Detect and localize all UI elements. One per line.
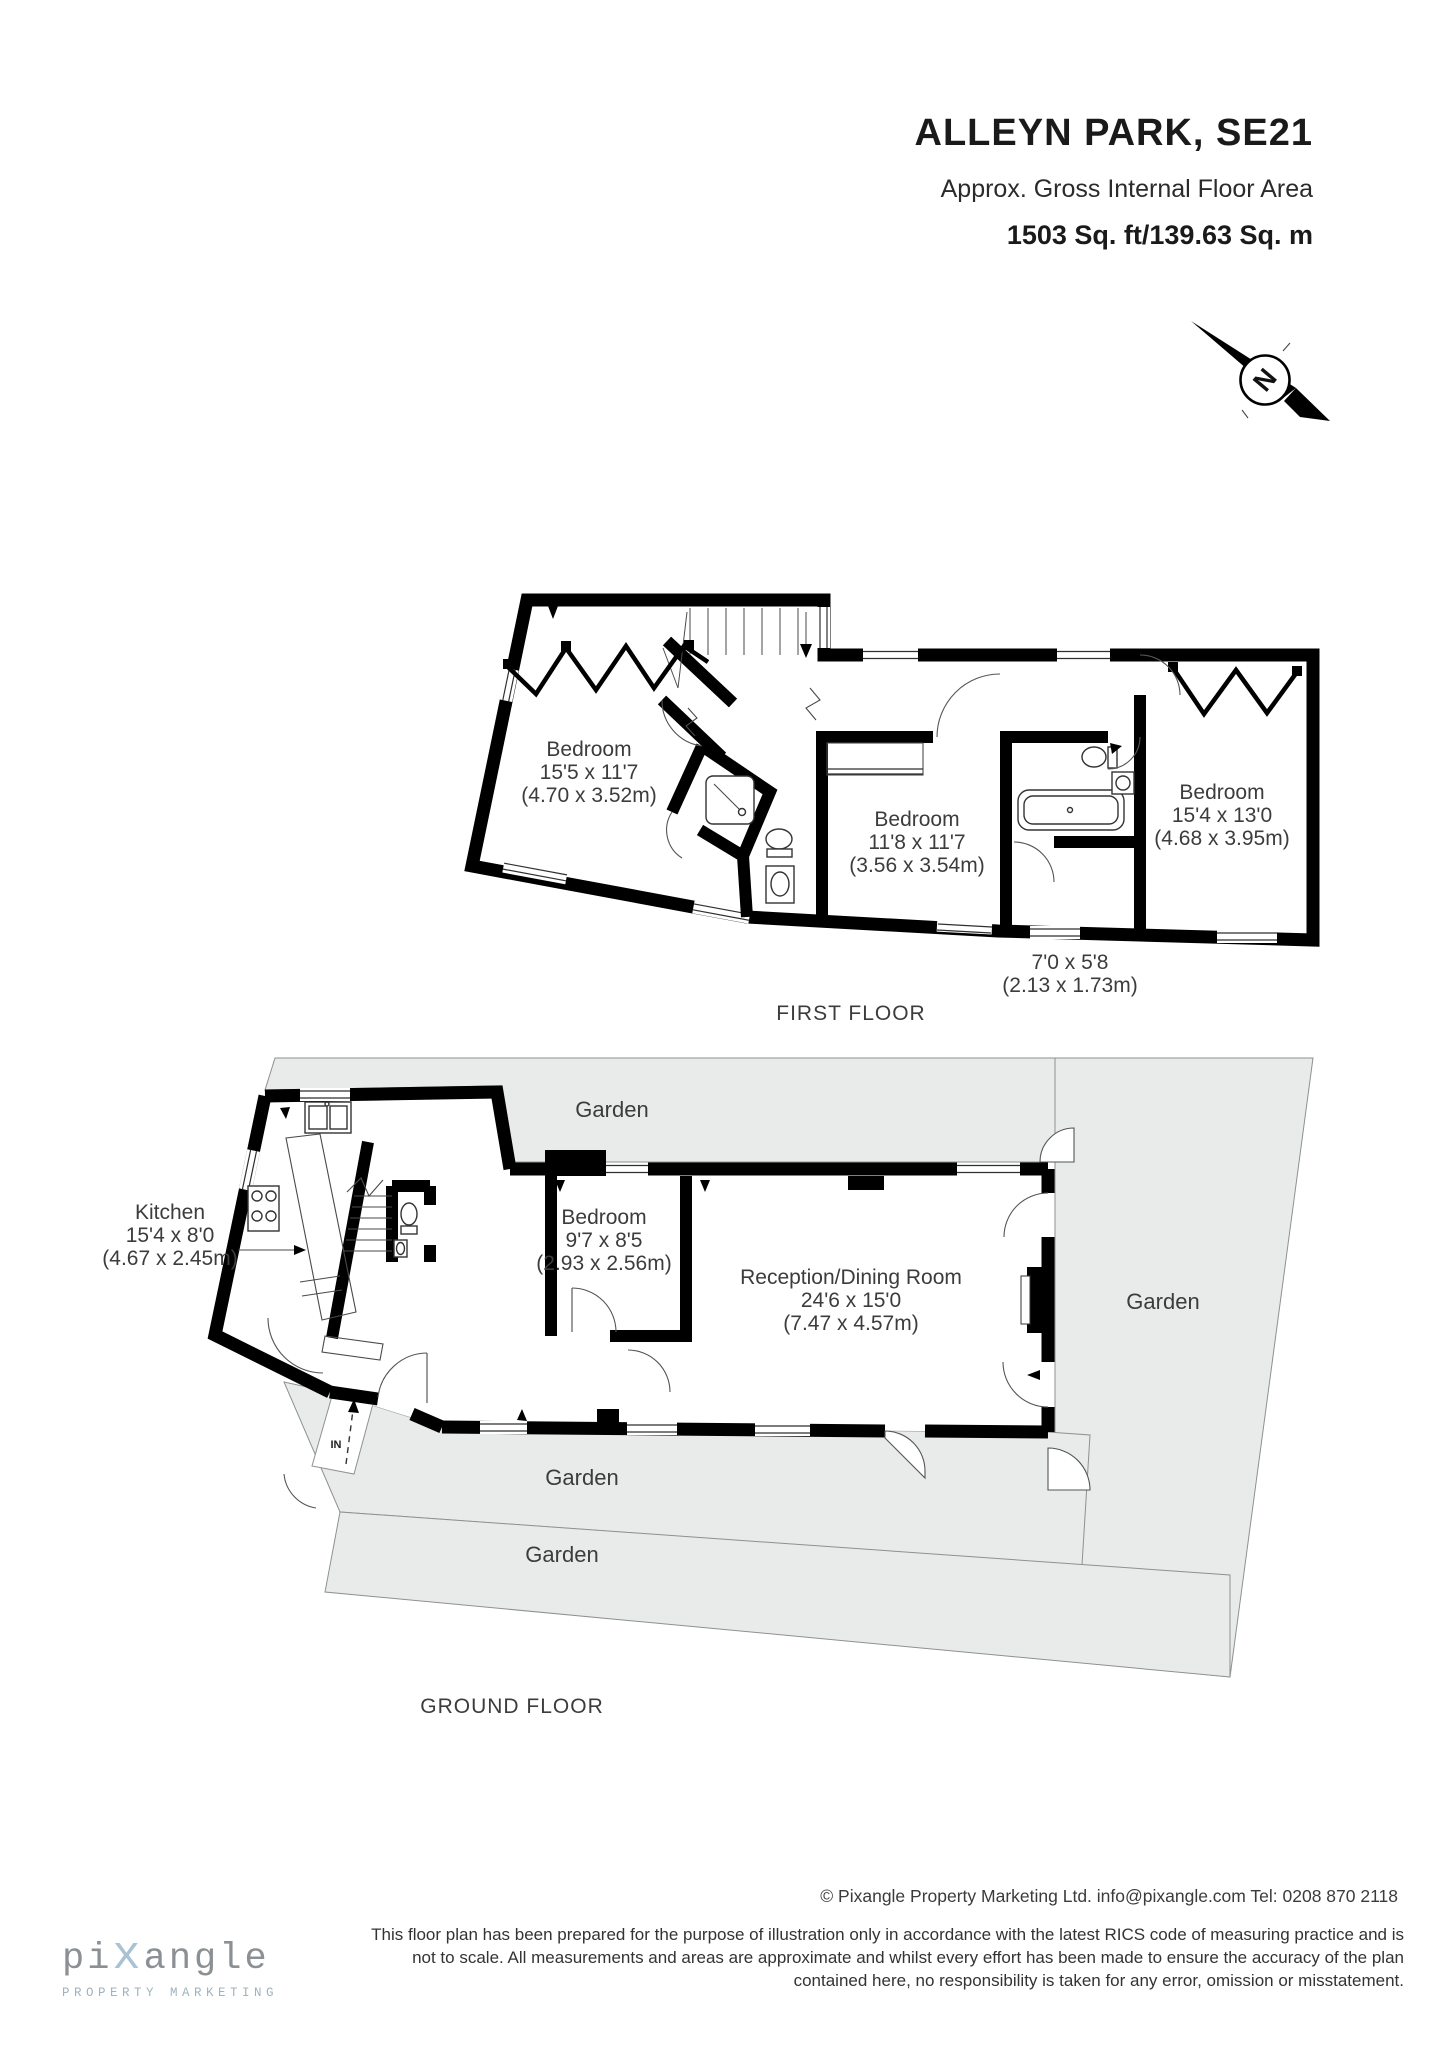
logo-part-x: x [112, 1930, 143, 1983]
ff-bedroom-right-name: Bedroom [1179, 781, 1264, 804]
disclaimer-line-2: not to scale. All measurements and areas… [224, 1946, 1404, 1969]
compass-tick-sw [1242, 410, 1248, 418]
disclaimer-line-1: This floor plan has been prepared for th… [224, 1923, 1404, 1946]
gf-corner-pier [545, 1150, 606, 1176]
garden-right-label: Garden [1126, 1289, 1199, 1314]
ff-bedroom-left-name: Bedroom [546, 738, 631, 761]
disclaimer: This floor plan has been prepared for th… [224, 1923, 1404, 1992]
reception-dims-m: (7.47 x 4.57m) [783, 1312, 918, 1335]
ff-bath-icon [1018, 790, 1124, 830]
floorplan-page: { "header": { "title": "ALLEYN PARK, SE2… [0, 0, 1448, 2048]
ff-bedroom-left-dims-m: (4.70 x 3.52m) [521, 784, 656, 807]
reception-dims-ft: 24'6 x 15'0 [801, 1289, 901, 1312]
reception-name: Reception/Dining Room [740, 1266, 962, 1289]
disclaimer-line-3: contained here, no responsibility is tak… [224, 1969, 1404, 1992]
ground-floor-plan: Kitchen 15'4 x 8'0 (4.67 x 2.45m) Bedroo… [102, 1058, 1313, 1718]
first-floor-caption: FIRST FLOOR [776, 1002, 925, 1025]
garden-front-label: Garden [525, 1542, 598, 1567]
ff-shower-icon [706, 776, 754, 824]
gate-arc [284, 1474, 316, 1508]
ff-store-dims-ft: 7'0 x 5'8 [1032, 951, 1109, 974]
entrance-in-label: IN [331, 1439, 342, 1451]
compass-tick-ne [1283, 343, 1290, 351]
copyright-line: © Pixangle Property Marketing Ltd. info@… [820, 1886, 1398, 1907]
compass-needle-tail [1284, 388, 1330, 421]
ff-bedroom-right-dims-m: (4.68 x 3.95m) [1154, 827, 1289, 850]
ff-bedroom-middle-name: Bedroom [874, 808, 959, 831]
fireplace-icon [1021, 1267, 1048, 1333]
gf-bedroom-dims-m: (2.93 x 2.56m) [536, 1252, 671, 1275]
gf-bedroom-dims-ft: 9'7 x 8'5 [566, 1229, 643, 1252]
ff-bedroom-middle-dims-ft: 11'8 x 11'7 [868, 831, 965, 854]
stove-icon [248, 1186, 279, 1231]
kitchen-name: Kitchen [135, 1201, 205, 1224]
ground-floor-caption: GROUND FLOOR [420, 1695, 604, 1718]
gf-sink-icon [394, 1240, 407, 1257]
kitchen-sink-icon [305, 1102, 351, 1133]
garden-top-label: Garden [575, 1097, 648, 1122]
ff-bedroom-middle-dims-m: (3.56 x 3.54m) [849, 854, 984, 877]
ff-bathroom-sink-icon [1112, 772, 1134, 794]
ff-store-dims-m: (2.13 x 1.73m) [1002, 974, 1137, 997]
gf-chimney-top [848, 1176, 884, 1190]
ff-bedroom-right-dims-ft: 15'4 x 13'0 [1172, 804, 1272, 827]
compass-icon: N [1191, 321, 1330, 421]
gf-toilet-icon [401, 1203, 417, 1234]
ff-wc-toilet-icon [766, 829, 792, 857]
kitchen-dims-ft: 15'4 x 8'0 [126, 1224, 215, 1247]
gf-chimney-bottom [597, 1409, 619, 1425]
gf-bedroom-name: Bedroom [561, 1206, 646, 1229]
garden-back-label: Garden [545, 1465, 618, 1490]
ff-wc-sink-icon [766, 866, 794, 903]
ff-bedroom-left-dims-ft: 15'5 x 11'7 [540, 761, 639, 784]
logo-part-1: pi [62, 1938, 112, 1980]
floorplan-drawing: N [0, 0, 1448, 2048]
first-floor-plan: Bedroom 15'5 x 11'7 (4.70 x 3.52m) Bedro… [472, 600, 1313, 1025]
kitchen-dims-m: (4.67 x 2.45m) [102, 1247, 237, 1270]
